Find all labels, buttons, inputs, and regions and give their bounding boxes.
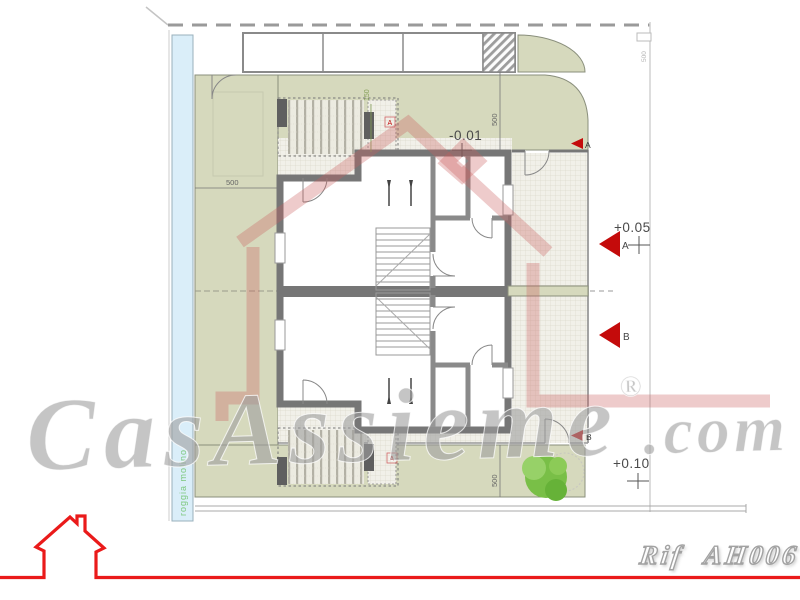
tree-canopy-top [549,457,567,475]
ramp-north-pillar-1 [277,99,287,127]
ramp-south-pillar-2 [364,444,374,471]
ramp-south-marker: A [390,456,395,463]
level-plus-b: +0.10 [613,456,650,471]
dim-150-ramp: 150 [364,89,371,101]
window-west-b [275,320,285,350]
party-wall [280,286,508,297]
logo-red-house [0,516,800,578]
section-b-triangle-large [599,322,620,348]
carport-outline [243,33,515,72]
tree-canopy-light [522,456,546,480]
dim-500-top-right: 500 [490,113,499,126]
carport-hatched-bay [483,33,515,72]
ramp-north-treads [288,100,364,154]
garden-west [195,75,278,497]
logo-house-outline [0,516,800,578]
floor-plan-svg: 500 roggia molino [0,0,800,600]
dim-500-edge: 500 [641,51,648,62]
plan-sheet: 500 roggia molino [0,0,800,600]
paving-south-notch [278,404,358,430]
dim-500-bottom: 500 [490,474,499,487]
ramp-south: A [277,428,398,486]
section-a-label-small: A [585,140,591,150]
party-hedge [508,286,588,296]
sheet-corner-line [146,7,168,25]
legend-box [637,33,651,41]
garden-corner-round [518,35,585,72]
ramp-north-marker: A [388,120,393,127]
ramp-south-pillar-1 [277,457,287,485]
level-plus-a-cross [628,236,650,254]
ramp-south-treads [288,430,364,484]
level-plus-b-cross [627,473,649,489]
canal-label: roggia molino [178,449,188,516]
section-b-label-small: B [586,432,592,442]
dim-500-left: 500 [226,178,239,187]
section-a-triangle-large [599,231,620,257]
section-a-label-large: A [622,241,629,252]
window-east-b [503,368,513,398]
window-west-a [275,233,285,263]
canal-water [172,35,193,521]
ramp-north-pillar-2 [364,112,374,139]
carport [243,33,515,72]
tree-canopy-dark [545,479,567,501]
section-b-label-large: B [623,332,630,343]
canal-strip: roggia molino [169,30,193,521]
